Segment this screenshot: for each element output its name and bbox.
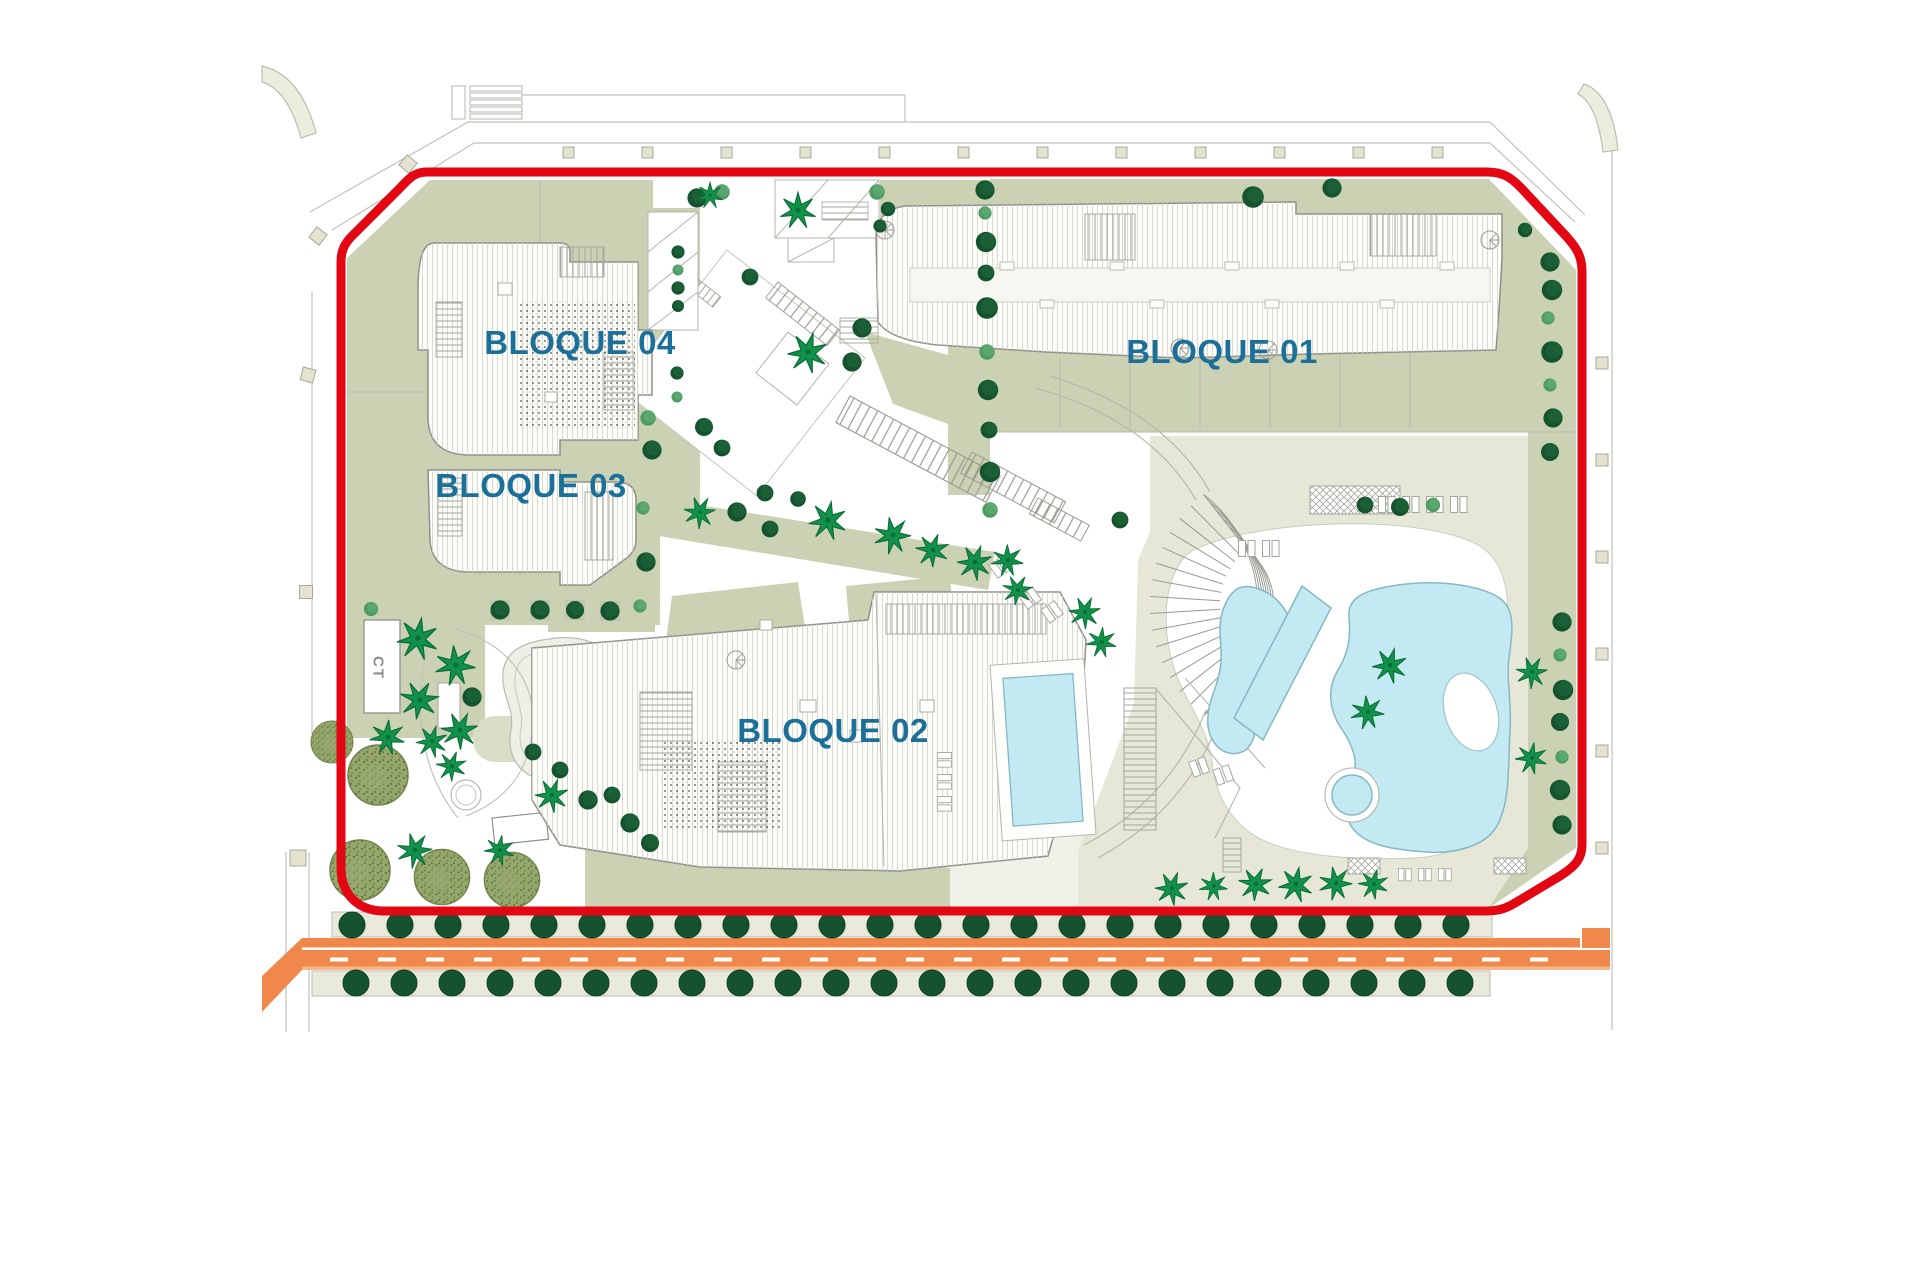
- label-bloque-02: BLOQUE 02: [737, 712, 929, 750]
- crosswalk-icon: [452, 86, 522, 119]
- stairs-to-deck: [1124, 688, 1156, 830]
- road: [262, 928, 1610, 1012]
- roof-corridor: [910, 268, 1490, 302]
- label-bloque-04: BLOQUE 04: [484, 324, 676, 362]
- round-pool: [1332, 775, 1372, 815]
- label-ct: CT: [370, 656, 387, 680]
- pergola-trellis: [1310, 486, 1400, 514]
- stairs: [1223, 838, 1241, 872]
- site-plan-canvas: BLOQUE 01 BLOQUE 02 BLOQUE 03 BLOQUE 04 …: [0, 0, 1920, 1280]
- specimen-tree-icon: [348, 745, 408, 805]
- bollard-row-top: [563, 147, 1443, 158]
- label-bloque-03: BLOQUE 03: [435, 467, 627, 505]
- label-bloque-01: BLOQUE 01: [1126, 333, 1318, 371]
- bollard-column-right: [1596, 357, 1608, 854]
- bloque-02-roof-pool: [990, 659, 1096, 841]
- site-plan-drawing: [0, 0, 1920, 1280]
